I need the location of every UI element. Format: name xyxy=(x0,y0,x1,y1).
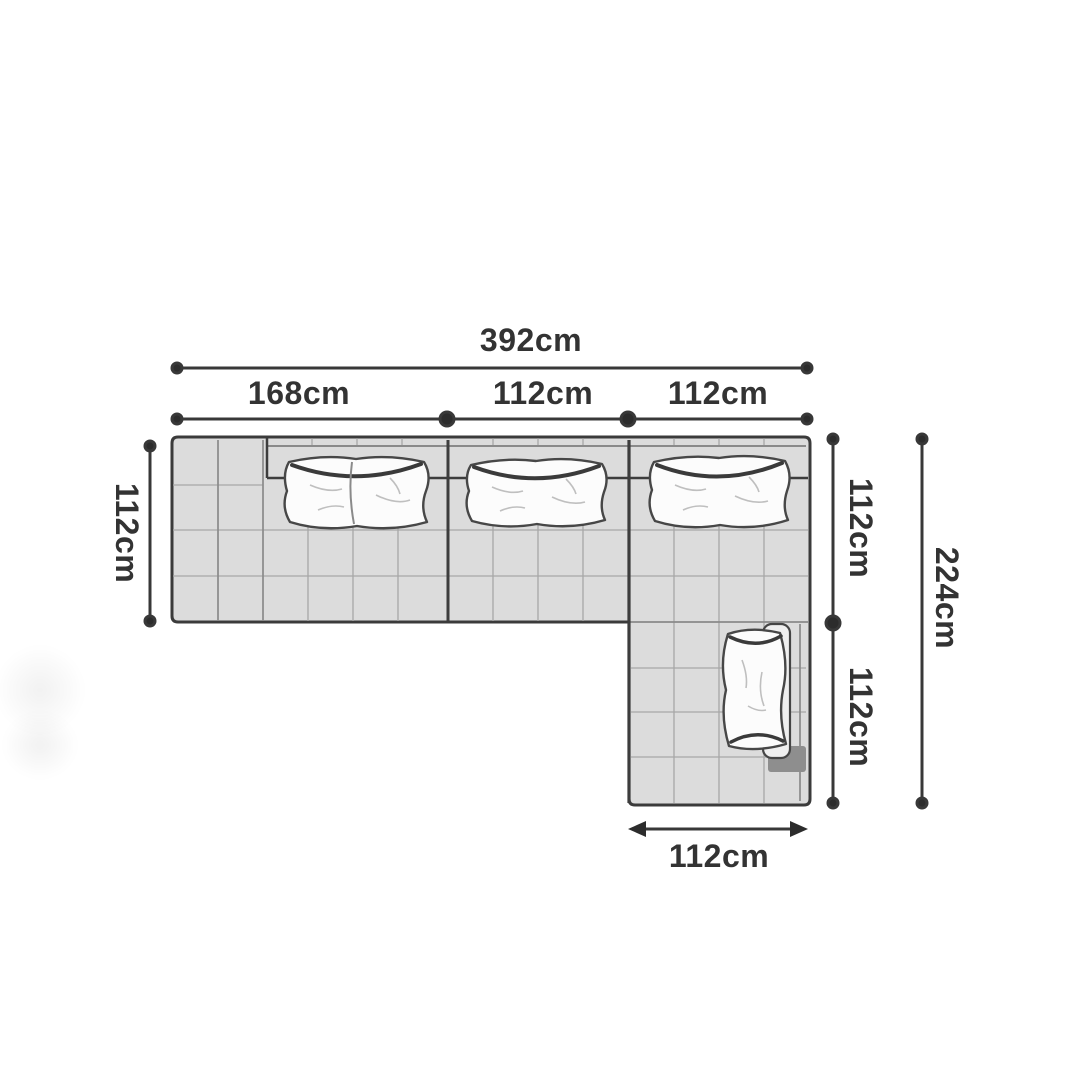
dim-label-right-depth-lower: 112cm xyxy=(845,667,877,767)
diagram-canvas: 392cm 168cm 112cm 112cm 112cm 112cm 112c… xyxy=(0,0,1080,1080)
chaise-pillow xyxy=(723,630,786,749)
dim-line-total-width xyxy=(172,363,812,373)
dim-label-chaise-width: 112cm xyxy=(669,840,769,872)
dim-line-right-total xyxy=(917,434,927,808)
dim-label-segment-168: 168cm xyxy=(248,377,350,409)
back-pillow-3 xyxy=(650,456,790,527)
dim-line-top-segments xyxy=(172,412,812,426)
dim-label-segment-112-right: 112cm xyxy=(668,377,768,409)
dim-label-segment-112-mid: 112cm xyxy=(493,377,593,409)
dim-label-right-depth-upper: 112cm xyxy=(845,478,877,578)
dim-line-right-depths xyxy=(826,434,840,808)
sofa-dimension-drawing xyxy=(0,0,1080,1080)
back-pillow-1 xyxy=(285,457,429,528)
dim-line-left-depth xyxy=(145,441,155,626)
dim-label-overall-width: 392cm xyxy=(480,324,582,356)
back-pillow-2 xyxy=(467,459,607,526)
dim-line-chaise-width xyxy=(628,821,808,837)
dim-label-left-depth: 112cm xyxy=(111,483,143,583)
dim-label-right-total: 224cm xyxy=(931,547,963,649)
